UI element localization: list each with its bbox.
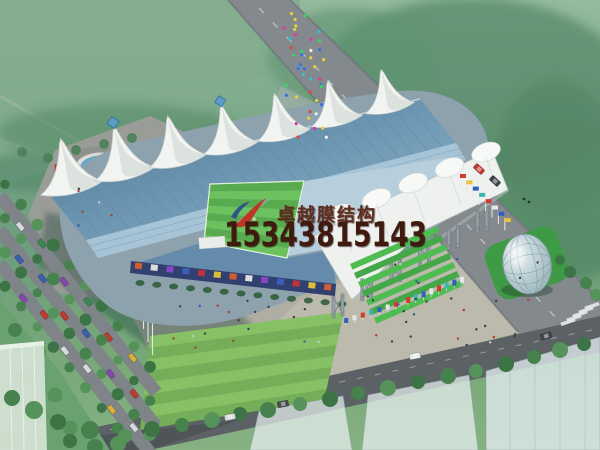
- person-dot: [466, 344, 468, 346]
- crowd-dot: [309, 77, 312, 80]
- person-dot: [98, 201, 100, 203]
- crowd-dot: [282, 26, 285, 29]
- hedge-bush: [136, 280, 145, 286]
- ad-panel: [245, 275, 253, 282]
- crowd-dot: [309, 56, 312, 59]
- tree: [112, 388, 124, 400]
- tree: [580, 277, 592, 289]
- tree: [380, 380, 396, 396]
- tree: [16, 233, 26, 243]
- scenery-shape: [281, 402, 286, 407]
- tree: [8, 323, 22, 337]
- crowd-dot: [299, 63, 302, 66]
- tree: [80, 314, 92, 326]
- person-dot: [527, 298, 529, 300]
- hedge-bush: [169, 284, 178, 290]
- person-dot: [198, 305, 200, 307]
- tree: [175, 418, 189, 432]
- plaza-banner: [369, 310, 373, 315]
- crowd-dot: [315, 99, 318, 102]
- hedge-bush: [287, 296, 296, 302]
- tree: [322, 391, 338, 407]
- tree: [129, 376, 139, 386]
- tree: [552, 342, 568, 358]
- crowd-dot: [315, 112, 318, 115]
- crowd-dot: [290, 12, 293, 15]
- pitch-south-structure: [199, 236, 226, 249]
- crowd-dot: [300, 50, 303, 53]
- flag: [492, 206, 498, 210]
- tree: [527, 350, 541, 364]
- plaza-banner: [460, 277, 464, 283]
- crowd-dot: [294, 24, 297, 27]
- crowd-dot: [309, 90, 312, 93]
- tree: [71, 145, 81, 155]
- plaza-banner: [406, 297, 410, 303]
- crowd-dot: [295, 95, 298, 98]
- person-dot: [417, 282, 419, 284]
- tree: [63, 434, 77, 448]
- person-dot: [77, 224, 79, 226]
- crowd-dot: [309, 49, 312, 52]
- person-dot: [405, 321, 407, 323]
- hedge-bush: [220, 289, 229, 295]
- tree: [498, 356, 514, 372]
- flag: [460, 174, 466, 178]
- person-dot: [254, 311, 256, 313]
- crowd-dot: [297, 67, 300, 70]
- person-dot: [303, 340, 305, 342]
- hedge-bush: [186, 285, 195, 291]
- tree: [33, 288, 42, 297]
- tree: [4, 390, 20, 406]
- person-dot: [179, 305, 181, 307]
- tree: [204, 412, 220, 428]
- tree: [79, 348, 91, 360]
- tree: [48, 341, 59, 352]
- ad-panel: [182, 268, 190, 275]
- tree: [128, 409, 139, 420]
- hedge-bush: [237, 291, 246, 297]
- tree: [99, 139, 109, 149]
- flag: [473, 187, 479, 191]
- crowd-dot: [285, 84, 288, 87]
- tree: [411, 375, 425, 389]
- person-dot: [397, 303, 399, 305]
- scenery-shape: [228, 415, 233, 420]
- person-dot: [172, 337, 174, 339]
- tree: [47, 273, 60, 286]
- crowd-dot: [318, 77, 321, 80]
- tree: [97, 369, 107, 379]
- ad-panel: [166, 266, 174, 273]
- hedge-bush: [321, 299, 330, 305]
- tree: [81, 421, 99, 439]
- scenery-shape: [413, 354, 418, 359]
- person-dot: [246, 300, 248, 302]
- person-dot: [410, 335, 412, 337]
- tree: [80, 382, 91, 393]
- person-dot: [247, 328, 249, 330]
- crowd-dot: [297, 135, 300, 138]
- ad-panel: [214, 271, 222, 278]
- person-dot: [204, 332, 206, 334]
- tree: [144, 361, 156, 373]
- hedge-bush: [203, 287, 212, 293]
- tree: [43, 153, 53, 163]
- plaza-banner: [445, 283, 449, 289]
- crowd-dot: [318, 48, 321, 51]
- person-dot: [413, 313, 415, 315]
- ad-panel: [150, 264, 158, 271]
- person-dot: [457, 337, 459, 339]
- crowd-dot: [290, 46, 293, 49]
- crowd-dot: [294, 33, 297, 36]
- person-dot: [110, 214, 112, 216]
- tree: [97, 403, 107, 413]
- person-dot: [425, 300, 427, 302]
- crowd-dot: [300, 53, 303, 56]
- plaza-banner: [437, 285, 441, 291]
- crowd-dot: [307, 117, 310, 120]
- tree: [577, 337, 591, 351]
- crowd-dot: [322, 58, 325, 61]
- flag: [486, 199, 492, 203]
- person-dot: [463, 309, 465, 311]
- person-dot: [493, 336, 495, 338]
- crowd-dot: [320, 103, 323, 106]
- tree: [15, 267, 27, 279]
- tree: [129, 341, 140, 352]
- person-dot: [367, 295, 369, 297]
- ad-panel: [229, 273, 237, 280]
- tree: [260, 402, 276, 418]
- crowd-dot: [318, 39, 321, 42]
- person-dot: [237, 319, 239, 321]
- person-dot: [536, 261, 538, 263]
- tree: [33, 322, 42, 331]
- tree: [0, 281, 10, 292]
- person-dot: [78, 188, 80, 190]
- hedge-bush: [253, 292, 262, 298]
- ad-panel: [308, 282, 316, 289]
- pitch-center-spot: [252, 217, 256, 221]
- crowd-dot: [288, 37, 291, 40]
- tree: [555, 255, 565, 265]
- hedge-bush: [304, 298, 313, 304]
- crowd-dot: [325, 136, 328, 139]
- flag: [479, 193, 485, 197]
- tree: [50, 414, 66, 430]
- tree: [32, 254, 42, 264]
- plaza-banner: [344, 318, 348, 323]
- crowd-dot: [320, 85, 323, 88]
- tree: [113, 356, 122, 365]
- tree: [15, 199, 26, 210]
- person-dot: [489, 341, 491, 343]
- ad-panel: [135, 263, 143, 270]
- person-dot: [403, 310, 405, 312]
- crowd-dot: [285, 94, 288, 97]
- crowd-dot: [302, 73, 305, 76]
- person-dot: [81, 210, 83, 212]
- person-dot: [415, 280, 417, 282]
- person-dot: [217, 304, 219, 306]
- plaza-banner: [361, 313, 365, 318]
- tree: [64, 328, 76, 340]
- person-dot: [495, 300, 497, 302]
- person-dot: [77, 190, 79, 192]
- crowd-dot: [309, 38, 312, 41]
- motorbike-dot: [528, 201, 531, 204]
- tree: [351, 386, 365, 400]
- tree: [96, 334, 107, 345]
- tree: [48, 307, 59, 318]
- crowd-dot: [295, 122, 298, 125]
- tree: [440, 368, 456, 384]
- person-dot: [293, 316, 295, 318]
- tree: [16, 302, 26, 312]
- tree: [64, 362, 74, 372]
- crowd-dot: [292, 54, 295, 57]
- hedge-bush: [270, 294, 279, 300]
- person-dot: [450, 297, 452, 299]
- crowd-dot: [303, 67, 306, 70]
- tree: [0, 213, 10, 223]
- crowd-dot: [309, 110, 312, 113]
- stadium-rendering: 卓越膜结构 15343815143: [0, 0, 600, 450]
- motorbike-dot: [523, 198, 526, 201]
- person-dot: [391, 340, 393, 342]
- plaza-banner: [422, 291, 426, 297]
- plaza-banner: [429, 288, 433, 294]
- tree: [144, 421, 160, 437]
- tree: [0, 180, 9, 189]
- ad-panel: [277, 278, 285, 285]
- plaza-banner: [377, 307, 381, 312]
- person-dot: [475, 328, 477, 330]
- crowd-dot: [293, 18, 296, 21]
- tree: [31, 219, 43, 231]
- ad-panel: [292, 280, 300, 287]
- ad-panel: [198, 270, 206, 277]
- person-dot: [375, 334, 377, 336]
- tree: [145, 395, 156, 406]
- tree: [469, 364, 483, 378]
- crowd-dot: [321, 127, 324, 130]
- person-dot: [192, 335, 194, 337]
- person-dot: [228, 311, 230, 313]
- tree: [17, 147, 27, 157]
- tree: [127, 133, 137, 143]
- football-pitch: [199, 181, 304, 258]
- person-dot: [372, 299, 374, 301]
- person-dot: [399, 263, 401, 265]
- tree: [48, 388, 63, 403]
- person-dot: [317, 341, 319, 343]
- tree: [25, 401, 43, 419]
- ad-panel: [261, 277, 269, 284]
- crowd-dot: [313, 65, 316, 68]
- person-dot: [519, 277, 521, 279]
- person-dot: [484, 325, 486, 327]
- crowd-dot: [304, 14, 307, 17]
- tree: [64, 294, 74, 304]
- crowd-dot: [293, 28, 296, 31]
- person-dot: [456, 258, 458, 260]
- crowd-dot: [317, 30, 320, 33]
- person-dot: [304, 308, 306, 310]
- ad-panel: [324, 284, 332, 291]
- tree: [47, 239, 60, 252]
- flag: [498, 212, 504, 216]
- person-dot: [194, 346, 196, 348]
- flag: [466, 180, 472, 184]
- person-dot: [232, 340, 234, 342]
- plaza-banner: [452, 280, 456, 286]
- person-dot: [415, 298, 417, 300]
- flag: [505, 218, 511, 222]
- hedge-bush: [152, 282, 161, 288]
- tree: [564, 266, 576, 278]
- tree: [293, 397, 307, 411]
- plaza-banner: [386, 305, 390, 310]
- tree: [112, 321, 123, 332]
- rendering-scene: [0, 0, 600, 450]
- person-dot: [513, 335, 515, 337]
- person-dot: [394, 263, 396, 265]
- crowd-dot: [313, 127, 316, 130]
- plaza-banner: [353, 315, 357, 320]
- crowd-dot: [299, 125, 302, 128]
- person-dot: [267, 306, 269, 308]
